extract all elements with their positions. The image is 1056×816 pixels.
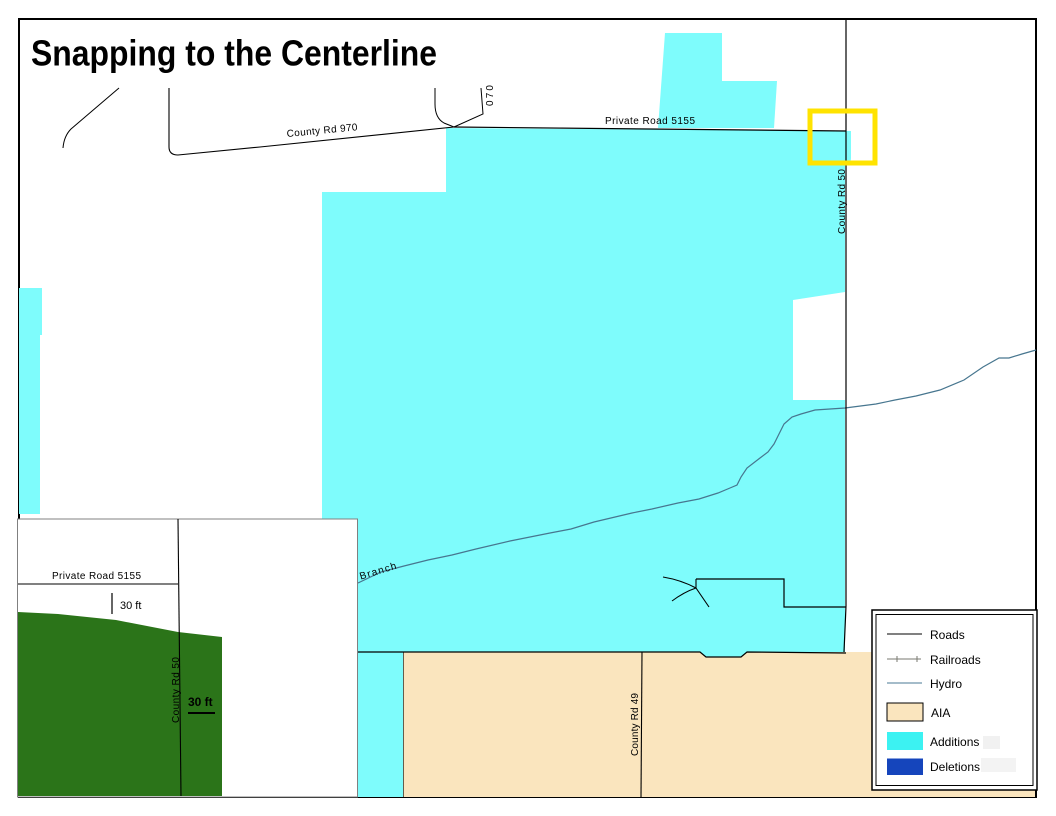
svg-text:Private Road 5155: Private Road 5155 <box>52 571 141 582</box>
svg-text:Private Road 5155: Private Road 5155 <box>605 116 695 127</box>
svg-text:AIA: AIA <box>931 706 950 720</box>
svg-text:Railroads: Railroads <box>930 653 981 667</box>
svg-text:County Rd 50: County Rd 50 <box>171 657 182 723</box>
svg-text:Deletions: Deletions <box>930 760 980 774</box>
svg-text:30 ft: 30 ft <box>120 600 141 612</box>
svg-text:Snapping to the Centerline: Snapping to the Centerline <box>31 33 437 74</box>
svg-text:County Rd 50: County Rd 50 <box>837 169 848 234</box>
svg-text:Roads: Roads <box>930 628 965 642</box>
svg-text:30 ft: 30 ft <box>188 695 213 709</box>
svg-text:070: 070 <box>485 85 496 106</box>
svg-text:County Rd 49: County Rd 49 <box>630 693 641 756</box>
svg-text:Hydro: Hydro <box>930 677 962 691</box>
svg-text:Additions: Additions <box>930 735 979 749</box>
